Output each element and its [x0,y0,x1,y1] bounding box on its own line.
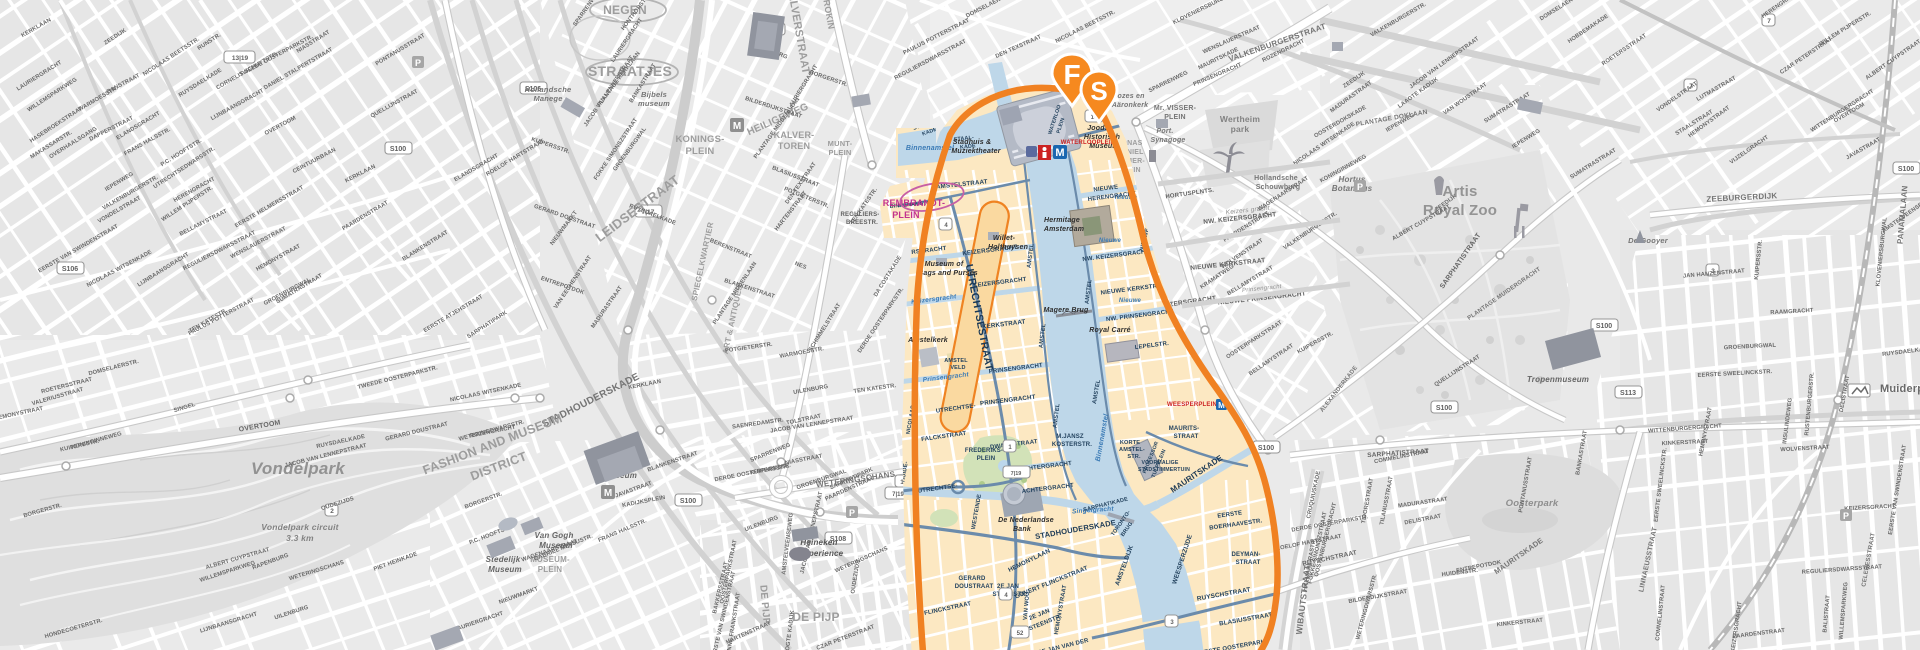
svg-text:STR.: STR. [1127,454,1141,460]
svg-text:STRAAT: STRAAT [1174,434,1199,440]
svg-text:Amsterdam: Amsterdam [1043,226,1084,233]
svg-text:Stadhuis &: Stadhuis & [953,139,992,146]
svg-text:PLEIN: PLEIN [686,146,715,157]
svg-text:S100: S100 [1436,405,1452,412]
svg-text:S100: S100 [680,498,696,505]
svg-text:P: P [1843,511,1849,521]
svg-text:WATERLOOPLEIN: WATERLOOPLEIN [1061,140,1116,146]
svg-text:KORTE: KORTE [1120,440,1140,446]
svg-text:Hollandsche: Hollandsche [525,85,572,94]
svg-text:Hermitage: Hermitage [1044,217,1080,224]
svg-text:Botanicus: Botanicus [1332,184,1373,193]
svg-text:Vondelpark circuit: Vondelpark circuit [261,522,339,532]
svg-text:S100: S100 [1898,166,1914,173]
svg-text:Oosterpark: Oosterpark [1506,498,1559,509]
svg-text:TOREN: TOREN [778,141,810,151]
svg-text:Nieuwe: Nieuwe [1119,298,1142,304]
svg-text:3.3 km: 3.3 km [286,533,314,543]
svg-text:REMBRANDT-: REMBRANDT- [883,198,946,208]
svg-text:P: P [1357,182,1363,192]
svg-text:Hollandsche: Hollandsche [1254,175,1298,182]
svg-text:museum: museum [638,99,670,108]
svg-text:S100: S100 [1596,323,1612,330]
svg-text:7: 7 [1767,18,1771,25]
svg-text:7|19: 7|19 [892,492,904,498]
svg-text:Synagoge: Synagoge [1150,137,1185,144]
svg-text:S100: S100 [390,146,406,153]
svg-text:M.JANSZ: M.JANSZ [1056,434,1084,440]
svg-text:S106: S106 [62,266,78,273]
svg-text:P: P [415,58,421,68]
svg-text:Manege: Manege [533,94,562,103]
svg-text:13|19: 13|19 [232,55,249,62]
svg-text:Bank: Bank [1013,526,1032,533]
svg-text:Nieuwe: Nieuwe [1099,238,1122,244]
svg-text:52: 52 [1017,631,1024,637]
svg-text:Museum: Museum [488,565,522,574]
svg-text:Aäronkerk: Aäronkerk [1111,102,1149,109]
svg-text:PLEIN: PLEIN [538,565,563,574]
svg-text:Mr. VISSER-: Mr. VISSER- [1154,105,1197,112]
svg-text:FREDERIKS-: FREDERIKS- [965,448,1003,454]
svg-text:Port.: Port. [1157,128,1174,135]
svg-text:Bijbels: Bijbels [641,90,667,99]
svg-text:De Gooyer: De Gooyer [1628,236,1669,245]
svg-text:Bags and Purses: Bags and Purses [918,270,978,277]
svg-text:KONINGS-: KONINGS- [675,134,724,145]
svg-text:park: park [1231,124,1250,134]
svg-text:Holthuysen: Holthuysen [988,244,1028,251]
svg-text:M: M [733,121,741,132]
svg-text:S100: S100 [1258,445,1274,452]
svg-text:De Nederlandse: De Nederlandse [998,517,1054,524]
svg-text:Tropenmuseum: Tropenmuseum [1527,375,1589,384]
svg-text:Willet-: Willet- [993,235,1016,242]
svg-text:S: S [1090,76,1107,106]
svg-text:GERARD: GERARD [959,576,986,582]
svg-text:Muziektheater: Muziektheater [951,148,1001,155]
svg-text:KALVER-: KALVER- [774,130,815,140]
svg-text:7|19: 7|19 [1011,471,1022,477]
svg-text:AMSTEL: AMSTEL [944,358,968,364]
svg-text:Van Gogh: Van Gogh [534,531,573,540]
svg-text:M: M [1055,147,1064,159]
svg-text:STRAAT: STRAAT [1236,560,1261,566]
svg-text:DOUSTRAAT: DOUSTRAAT [955,584,994,590]
svg-text:Royal Carré: Royal Carré [1089,327,1131,334]
svg-text:MAURITS-: MAURITS- [1169,426,1200,432]
svg-text:Muiderpoort: Muiderpoort [1880,383,1920,395]
svg-text:Wertheim: Wertheim [1220,114,1260,124]
svg-text:KOSTERSTR.: KOSTERSTR. [1052,442,1092,448]
svg-text:MUNT-: MUNT- [828,139,853,148]
svg-text:DEYMAN-: DEYMAN- [1231,552,1260,558]
svg-text:VELD: VELD [950,365,965,371]
svg-text:DE PIJP: DE PIJP [792,610,839,624]
svg-text:AMSTEL-: AMSTEL- [1119,447,1145,453]
svg-text:F: F [1063,59,1080,90]
svg-text:PLEIN: PLEIN [977,456,995,462]
svg-text:S113: S113 [1620,390,1636,397]
svg-text:WEESPERPLEIN: WEESPERPLEIN [1167,402,1217,408]
svg-text:Magere Brug: Magere Brug [1044,307,1090,314]
svg-text:PLEIN: PLEIN [828,148,851,157]
svg-text:Museum of: Museum of [925,261,964,268]
svg-text:M: M [604,488,612,499]
svg-text:P: P [849,508,855,518]
